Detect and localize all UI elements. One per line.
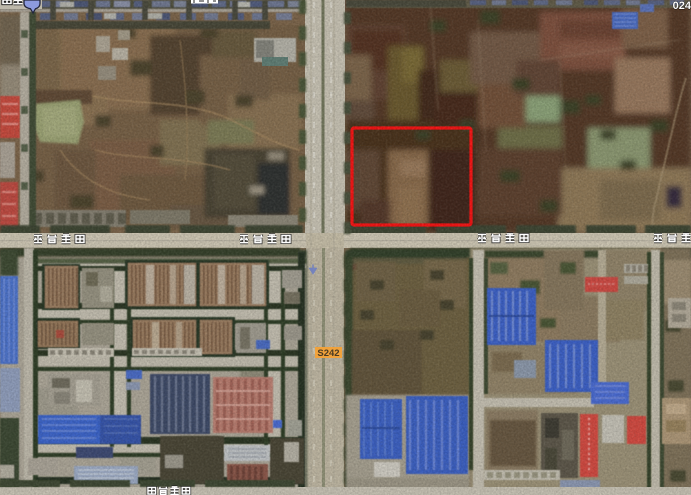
svg-text:024: 024 [673,0,691,12]
svg-text:S242: S242 [317,348,339,359]
